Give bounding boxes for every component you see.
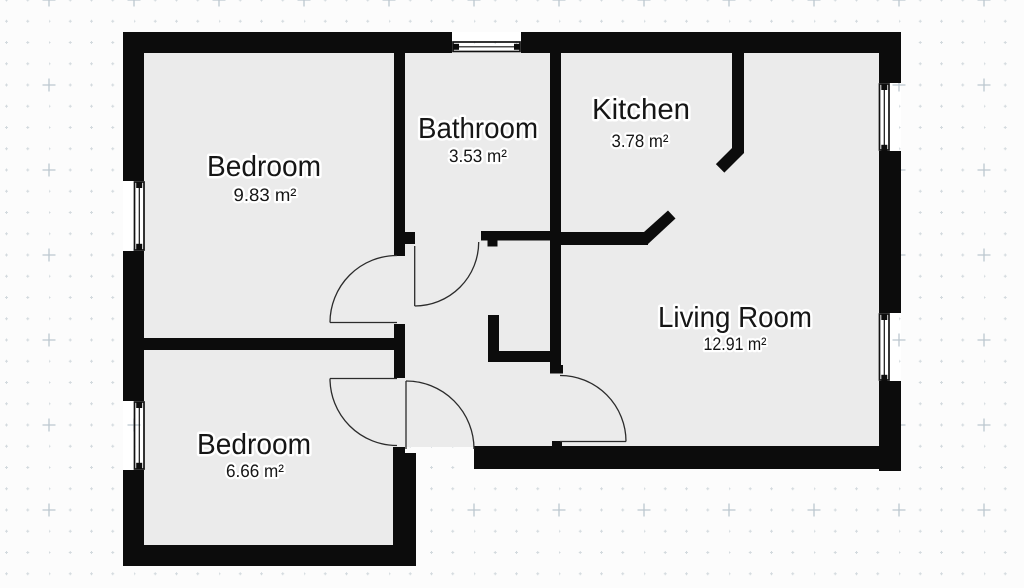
svg-text:3.53 m²: 3.53 m² xyxy=(449,146,507,166)
svg-text:Bedroom: Bedroom xyxy=(207,151,321,183)
svg-text:6.66 m²: 6.66 m² xyxy=(226,461,284,481)
svg-text:Bathroom: Bathroom xyxy=(418,113,538,145)
svg-text:Living Room: Living Room xyxy=(658,302,812,334)
svg-text:Kitchen: Kitchen xyxy=(592,94,690,126)
svg-text:12.91 m²: 12.91 m² xyxy=(704,334,767,354)
svg-text:3.78 m²: 3.78 m² xyxy=(612,131,669,151)
svg-text:9.83 m²: 9.83 m² xyxy=(234,185,297,205)
svg-text:Bedroom: Bedroom xyxy=(197,429,311,461)
